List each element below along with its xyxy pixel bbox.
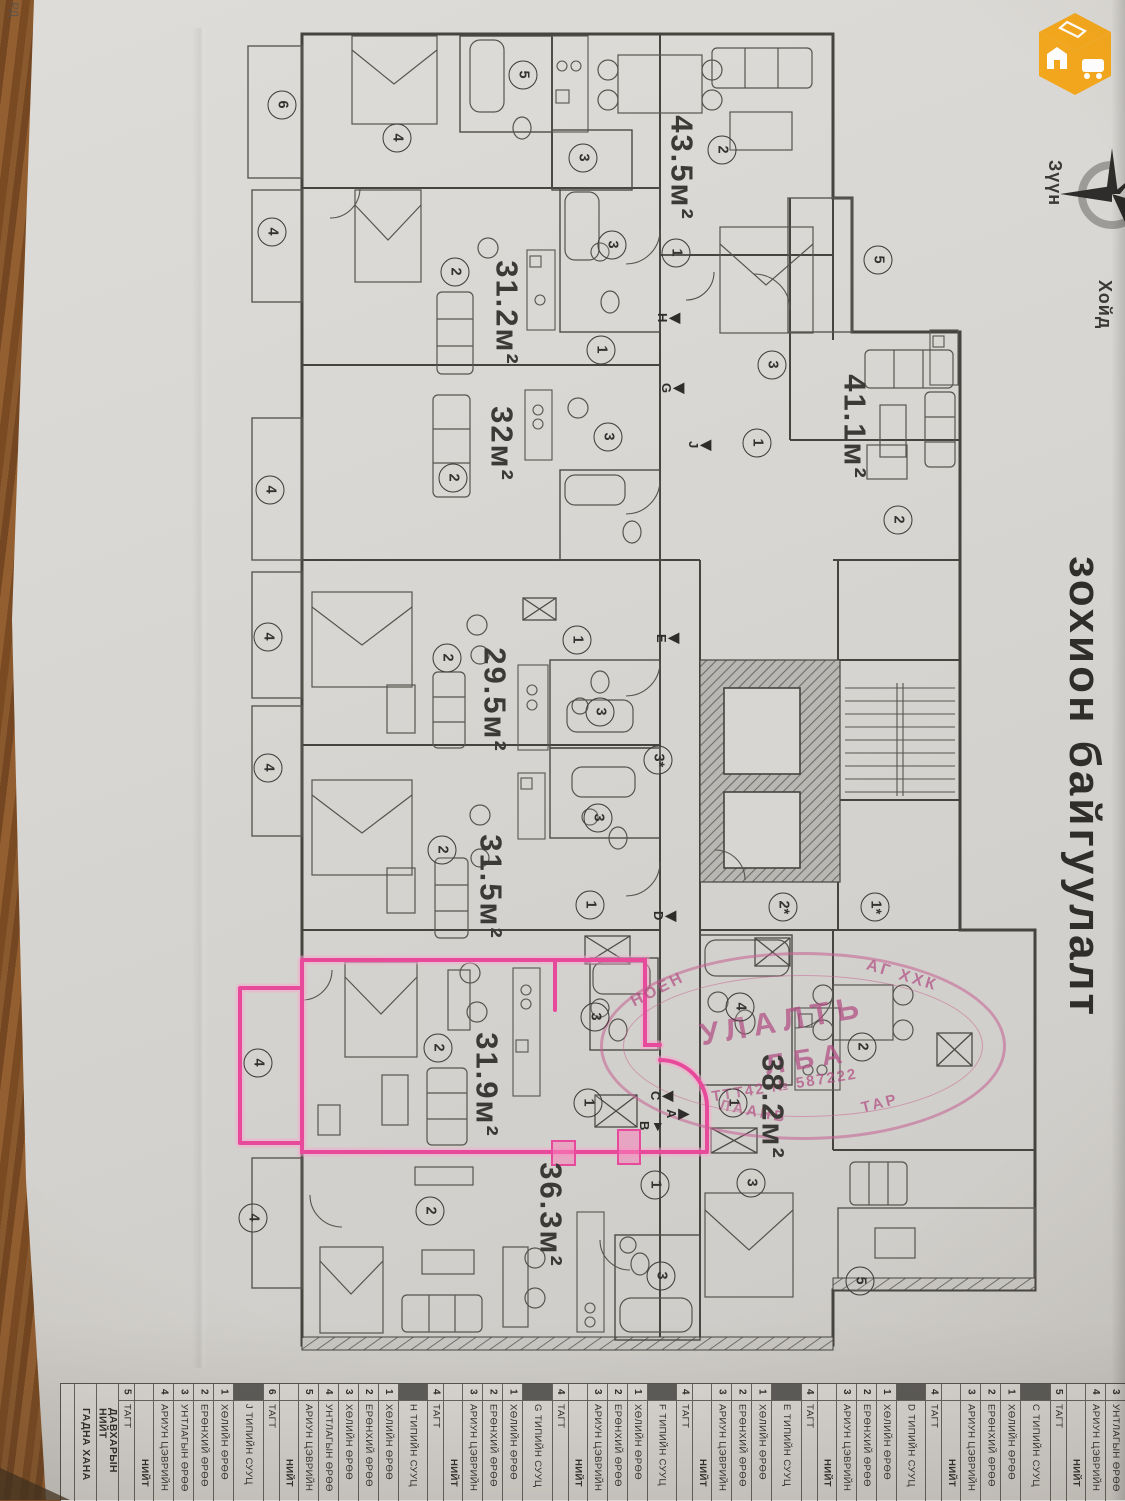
section-letter: D (652, 911, 665, 920)
section-marker: ◀С (649, 1088, 675, 1104)
table-column: 3УНТЛАГЫН ӨРӨӨ (174, 1384, 194, 1501)
unit-area-label: 29.5м² (480, 647, 511, 753)
row-label: ХӨЛИЙН ӨРӨӨ (343, 1404, 353, 1501)
room-number: 2 (715, 146, 730, 154)
row-label: С ТИПИЙН СУУЦ (1031, 1404, 1041, 1501)
compass-label-east: Зүүн (1046, 160, 1064, 206)
row-number: 2 (199, 1389, 209, 1395)
room-number-circle: 4 (383, 124, 412, 153)
room-number: 4 (265, 228, 280, 236)
bottom-wall-hatch (302, 1337, 833, 1350)
room-number-circle: 2 (439, 464, 468, 493)
section-arrow-icon: ◀ (668, 630, 681, 646)
room-number-circle: 3 (581, 1003, 610, 1032)
room-number-circle: 3 (584, 804, 613, 833)
table-column: 3АРИУН ЦЭВРИЙН (837, 1384, 857, 1501)
row-label: ТАГТ (1053, 1404, 1063, 1501)
row-number: 4 (431, 1389, 441, 1395)
row-number: 1 (219, 1389, 229, 1395)
row-label: ТАГТ (431, 1404, 441, 1501)
row-number: 5 (122, 1389, 132, 1395)
section-letter: Н (656, 313, 669, 322)
section-marker: ◀D (652, 908, 678, 924)
room-number: 3 (576, 154, 591, 162)
table-column: 4ТАГТ (926, 1384, 942, 1501)
table-column: ДАВХАРЫН НИЙТ (97, 1384, 119, 1501)
row-number: 4 (323, 1389, 333, 1395)
room-number: 4 (733, 1003, 748, 1011)
row-number: 3 (1110, 1389, 1120, 1395)
room-number: 6 (275, 101, 290, 109)
row-label: АРИУН ЦЭВРИЙН (592, 1404, 602, 1501)
room-number-circle: 1* (861, 893, 890, 922)
room-number-circle: 2 (708, 136, 737, 165)
table-column: 3АРИУН ЦЭВРИЙН (463, 1384, 483, 1501)
room-number-circle: 3* (644, 746, 673, 775)
room-number: 2 (435, 846, 450, 854)
room-number: 1 (570, 636, 585, 644)
row-label: УНТЛАГЫН ӨРӨӨ (323, 1404, 333, 1501)
room-number-circle: 3 (586, 698, 615, 727)
room-number-circle: 2 (441, 258, 470, 287)
row-label: НИЙТ (284, 1459, 294, 1501)
row-number: 4 (680, 1389, 690, 1395)
row-number: 3 (717, 1389, 727, 1395)
room-number: 3 (588, 1013, 603, 1021)
section-arrow-icon: ◀ (665, 908, 678, 924)
row-label: ХӨЛИЙН ӨРӨӨ (757, 1404, 767, 1501)
table-column: НИЙТ (818, 1384, 837, 1501)
compass-icon (1060, 148, 1125, 280)
row-label: ТАГТ (680, 1404, 690, 1501)
table-column: 4ТАГТ (428, 1384, 444, 1501)
table-column: D ТИПИЙН СУУЦ (897, 1384, 927, 1501)
room-number: 2 (431, 1044, 446, 1052)
room-number-circle: 4 (239, 1204, 268, 1233)
room-number-circle: 2 (416, 1197, 445, 1226)
room-number: 4 (261, 633, 276, 641)
row-number: 3 (179, 1389, 189, 1395)
row-label: ЕРӨНХИЙ ӨРӨӨ (737, 1404, 747, 1501)
row-number: 2 (612, 1389, 622, 1395)
room-number: 5 (853, 1277, 868, 1285)
row-label: УНТЛАГЫН ӨРӨӨ (179, 1404, 189, 1501)
unit-area-label: 31.2м² (492, 260, 523, 366)
balconies (248, 46, 1035, 1290)
room-number: 4 (246, 1214, 261, 1222)
room-number: 1 (581, 1099, 596, 1107)
room-number: 4 (390, 134, 405, 142)
room-number-circle: 1 (576, 891, 605, 920)
section-marker: ◀Н (656, 310, 682, 326)
table-column: ГАДНА ХАНА (75, 1384, 97, 1501)
row-label: ХӨЛИЙН ӨРӨӨ (632, 1404, 642, 1501)
elevator-core (700, 660, 840, 882)
room-number: 3 (601, 433, 616, 441)
row-label: НИЙТ (946, 1459, 956, 1501)
section-marker: ◀J (687, 437, 713, 453)
section-marker: ◀G (660, 380, 686, 396)
unit-area-label: 31.5м² (476, 834, 507, 940)
row-label: АРИУН ЦЭВРИЙН (303, 1404, 313, 1501)
room-number-circle: 3 (737, 1169, 766, 1198)
room-number: 5 (871, 256, 886, 264)
section-letter: В (638, 1121, 651, 1130)
row-number: 2 (861, 1389, 871, 1395)
row-number: 5 (303, 1389, 313, 1395)
row-label: Е ТИПИЙН СУУЦ (782, 1404, 792, 1501)
table-column: С ТИПИЙН СУУЦ (1021, 1384, 1051, 1501)
row-number: 4 (804, 1389, 814, 1395)
room-number-circle: 2 (884, 506, 913, 535)
room-number-circle: 6 (268, 91, 297, 120)
unit-area-label: 43.5м² (667, 115, 698, 221)
section-arrow-icon: ◀ (662, 1088, 675, 1104)
row-number: 1 (632, 1389, 642, 1395)
table-column: 1ХӨЛИЙН ӨРӨӨ (379, 1384, 399, 1501)
row-number: 2 (986, 1389, 996, 1395)
room-number-circle: 3 (569, 144, 598, 173)
room-number-circle: 2 (848, 1033, 877, 1062)
row-label: НИЙТ (573, 1459, 583, 1501)
row-label: ТАГТ (804, 1404, 814, 1501)
section-arrow-icon: ◀ (673, 380, 686, 396)
row-number: 2 (363, 1389, 373, 1395)
row-number: 3 (841, 1389, 851, 1395)
row-number: 2 (737, 1389, 747, 1395)
table-column: НИЙТ (444, 1384, 463, 1501)
table-column: 6ТАГТ (264, 1384, 280, 1501)
row-label: АРИУН ЦЭВРИЙН (966, 1404, 976, 1501)
room-number-circle: 2 (424, 1034, 453, 1063)
row-label: НИЙТ (697, 1459, 707, 1501)
table-column: 2ЕРӨНХИЙ ӨРӨӨ (359, 1384, 379, 1501)
room-number: 1 (583, 901, 598, 909)
table-column: 3АРИУН ЦЭВРИЙН (588, 1384, 608, 1501)
section-arrow-icon: ▶ (678, 1106, 691, 1122)
table-column: 5АРИУН ЦЭВРИЙН (299, 1384, 319, 1501)
room-number: 2 (440, 654, 455, 662)
room-number: 3 (654, 1272, 669, 1280)
row-label: D ТИПИЙН СУУЦ (906, 1404, 916, 1501)
row-label: Н ТИПИЙН СУУЦ (408, 1404, 418, 1501)
row-number: 4 (555, 1389, 565, 1395)
room-number-circle: 3 (647, 1262, 676, 1291)
row-number: 4 (1090, 1389, 1100, 1395)
table-column: 3УНТЛАГЫН ӨРӨӨ (1106, 1384, 1125, 1501)
table-column: 2ЕРӨНХИЙ ӨРӨӨ (857, 1384, 877, 1501)
section-letter: А (665, 1109, 678, 1118)
row-label: ТАГТ (929, 1404, 939, 1501)
row-number: 2 (488, 1389, 498, 1395)
room-number: 1 (594, 346, 609, 354)
table-column: 5ТАГТ (119, 1384, 135, 1501)
row-number: 6 (266, 1389, 276, 1395)
section-letter: J (687, 441, 700, 448)
room-number-circle: 1 (719, 1089, 748, 1118)
row-label: НИЙТ (448, 1459, 458, 1501)
room-number-circle: 1 (587, 336, 616, 365)
room-number: 2 (855, 1043, 870, 1051)
room-number: 4 (251, 1059, 266, 1067)
row-label: G ТИПИЙН СУУЦ (533, 1404, 543, 1501)
table-column: 2ЕРӨНХИЙ ӨРӨӨ (981, 1384, 1001, 1501)
brand-cube-logo (1039, 13, 1111, 95)
room-number-circle: 4 (254, 754, 283, 783)
page-title: зохион байгуулалт (1062, 556, 1106, 1018)
table-column: 1ХӨЛИЙН ӨРӨӨ (752, 1384, 772, 1501)
room-number: 1* (868, 900, 883, 914)
room-number-circle: 1 (743, 429, 772, 458)
row-label: ТАГТ (266, 1404, 276, 1501)
row-label: ХӨЛИЙН ӨРӨӨ (1006, 1404, 1016, 1501)
row-number: 1 (881, 1389, 891, 1395)
row-number: 1 (383, 1389, 393, 1395)
room-number-circle: 1 (563, 626, 592, 655)
row-number: 1 (757, 1389, 767, 1395)
row-label: ХӨЛИЙН ӨРӨӨ (881, 1404, 891, 1501)
unit-area-label: 32м² (487, 406, 518, 482)
section-letter: G (660, 383, 673, 393)
table-column: 1ХӨЛИЙН ӨРӨӨ (877, 1384, 897, 1501)
table-column: 1ХӨЛИЙН ӨРӨӨ (628, 1384, 648, 1501)
room-number-circle: 2 (433, 644, 462, 673)
table-column: НИЙТ (569, 1384, 588, 1501)
row-label: ЕРӨНХИЙ ӨРӨӨ (488, 1404, 498, 1501)
room-number-circle: 4 (256, 476, 285, 505)
room-number: 2 (423, 1207, 438, 1215)
row-label: АРИУН ЦЭВРИЙН (841, 1404, 851, 1501)
table-column: 4ТАГТ (677, 1384, 693, 1501)
row-label: ЕРӨНХИЙ ӨРӨӨ (986, 1404, 996, 1501)
room-number-circle: 5 (509, 61, 538, 90)
row-number: 3 (966, 1389, 976, 1395)
table-column: 2ЕРӨНХИЙ ӨРӨӨ (732, 1384, 752, 1501)
row-number: 3 (592, 1389, 602, 1395)
row-label: F ТИПИЙН СУУЦ (657, 1404, 667, 1501)
row-label: УНТЛАГЫН ӨРӨӨ (1110, 1404, 1120, 1501)
row-number: 1 (508, 1389, 518, 1395)
room-number-circle: 1 (641, 1171, 670, 1200)
room-number-circle: 3 (594, 423, 623, 452)
floor-plan-drawing (0, 0, 1125, 1500)
table-column: 3ХӨЛИЙН ӨРӨӨ (339, 1384, 359, 1501)
room-number: 3 (605, 241, 620, 249)
table-column: 4УНТЛАГЫН ӨРӨӨ (319, 1384, 339, 1501)
row-number: 4 (929, 1389, 939, 1395)
room-number: 1 (750, 439, 765, 447)
table-column: 2ЕРӨНХИЙ ӨРӨӨ (483, 1384, 503, 1501)
table-column: 1ХӨЛИЙН ӨРӨӨ (214, 1384, 234, 1501)
room-number-circle: 2* (769, 893, 798, 922)
room-number: 3* (651, 753, 666, 767)
room-number-circle: 3 (598, 231, 627, 260)
table-column: НИЙТ (135, 1384, 154, 1501)
table-column: G ТИПИЙН СУУЦ (523, 1384, 553, 1501)
table-column: 3АРИУН ЦЭВРИЙН (712, 1384, 732, 1501)
row-label: ЕРӨНХИЙ ӨРӨӨ (363, 1404, 373, 1501)
section-letter: С (649, 1091, 662, 1100)
table-column: НИЙТ (942, 1384, 961, 1501)
row-label: ХӨЛИЙН ӨРӨӨ (219, 1404, 229, 1501)
row-label: АРИУН ЦЭВРИЙН (159, 1404, 169, 1501)
room-number: 4 (263, 486, 278, 494)
room-number: 3 (765, 361, 780, 369)
row-label: ХӨЛИЙН ӨРӨӨ (508, 1404, 518, 1501)
section-marker: ▶А (665, 1106, 691, 1122)
section-arrow-icon: ◀ (700, 437, 713, 453)
room-number-circle: 3 (758, 351, 787, 380)
unit-area-label: 31.9м² (472, 1032, 503, 1138)
unit-area-label: 41.1м² (840, 374, 871, 480)
section-letter: Е (655, 634, 668, 643)
room-number: 1 (648, 1181, 663, 1189)
table-column: 1ХӨЛИЙН ӨРӨӨ (1001, 1384, 1021, 1501)
corner-text-fragment: РД (8, 2, 20, 17)
table-column: 1ХӨЛИЙН ӨРӨӨ (503, 1384, 523, 1501)
table-column: НИЙТ (1067, 1384, 1086, 1501)
row-label: J ТИПИЙН СУУЦ (244, 1404, 254, 1501)
row-label: ХӨЛИЙН ӨРӨӨ (383, 1404, 393, 1501)
table-column: НИЙТ (280, 1384, 299, 1501)
room-number-circle: 4 (258, 218, 287, 247)
row-number: 3 (343, 1389, 353, 1395)
row-label: АРИУН ЦЭВРИЙН (468, 1404, 478, 1501)
row-number: 1 (1006, 1389, 1016, 1395)
table-column: 2ЕРӨНХИЙ ӨРӨӨ (608, 1384, 628, 1501)
room-number: 3 (591, 814, 606, 822)
row-label: ТАГТ (555, 1404, 565, 1501)
room-number: 2* (776, 900, 791, 914)
section-arrow-icon: ◀ (669, 310, 682, 326)
row-label: АРИУН ЦЭВРИЙН (1090, 1404, 1100, 1501)
room-number-circle: 1 (662, 239, 691, 268)
room-number: 1 (669, 249, 684, 257)
row-number: 4 (159, 1389, 169, 1395)
table-column: 4ТАГТ (553, 1384, 569, 1501)
row-label: НИЙТ (1071, 1459, 1081, 1501)
table-column: J ТИПИЙН СУУЦ (234, 1384, 264, 1501)
room-number-circle: 4 (244, 1049, 273, 1078)
table-column: 2ЕРӨНХИЙ ӨРӨӨ (194, 1384, 214, 1501)
room-number: 2 (448, 268, 463, 276)
table-column: 5ТАГТ (1051, 1384, 1067, 1501)
table-column: Н ТИПИЙН СУУЦ (399, 1384, 429, 1501)
compass-label-north: Хойд (1096, 280, 1114, 329)
row-number: 5 (1053, 1389, 1063, 1395)
unit-area-label: 38.2м² (758, 1054, 789, 1160)
table-column: НИЙТ (693, 1384, 712, 1501)
row-number: 3 (468, 1389, 478, 1395)
room-number: 2 (446, 474, 461, 482)
room-number-circle: 4 (254, 623, 283, 652)
section-arrow-icon: ▼ (651, 1118, 664, 1134)
table-column (61, 1384, 75, 1501)
row-label: ТАГТ (122, 1404, 132, 1501)
table-column: 3АРИУН ЦЭВРИЙН (961, 1384, 981, 1501)
table-column: Е ТИПИЙН СУУЦ (772, 1384, 802, 1501)
room-number-circle: 1 (574, 1089, 603, 1118)
room-number-circle: 5 (864, 246, 893, 275)
staircase (845, 683, 955, 796)
unit-area-label: 36.3м² (536, 1162, 567, 1268)
room-number-circle: 5 (846, 1267, 875, 1296)
room-number: 5 (516, 71, 531, 79)
row-label: ДАВХАРЫН НИЙТ (97, 1408, 118, 1501)
row-label: НИЙТ (139, 1459, 149, 1501)
row-label: НИЙТ (822, 1459, 832, 1501)
room-number: 2 (891, 516, 906, 524)
row-label: ЕРӨНХИЙ ӨРӨӨ (861, 1404, 871, 1501)
room-number: 3 (744, 1179, 759, 1187)
table-column: F ТИПИЙН СУУЦ (648, 1384, 678, 1501)
table-column: 4ТАГТ (802, 1384, 818, 1501)
table-column: 4АРИУН ЦЭВРИЙН (154, 1384, 174, 1501)
row-label: АРИУН ЦЭВРИЙН (717, 1404, 727, 1501)
row-label: ГАДНА ХАНА (80, 1408, 91, 1501)
room-number: 3 (593, 708, 608, 716)
apartment-type-schedule-table: ГАДНА ХАНАДАВХАРЫН НИЙТ5ТАГТНИЙТ4АРИУН Ц… (60, 1383, 1125, 1501)
row-label: ЕРӨНХИЙ ӨРӨӨ (612, 1404, 622, 1501)
room-number-circle: 2 (428, 836, 457, 865)
row-label: ЕРӨНХИЙ ӨРӨӨ (199, 1404, 209, 1501)
room-number: 4 (261, 764, 276, 772)
room-number: 1 (726, 1099, 741, 1107)
table-column: 4АРИУН ЦЭВРИЙН (1086, 1384, 1106, 1501)
section-marker: ◀Е (655, 630, 681, 646)
room-number-circle: 4 (726, 993, 755, 1022)
section-marker: ▼В (638, 1118, 664, 1134)
